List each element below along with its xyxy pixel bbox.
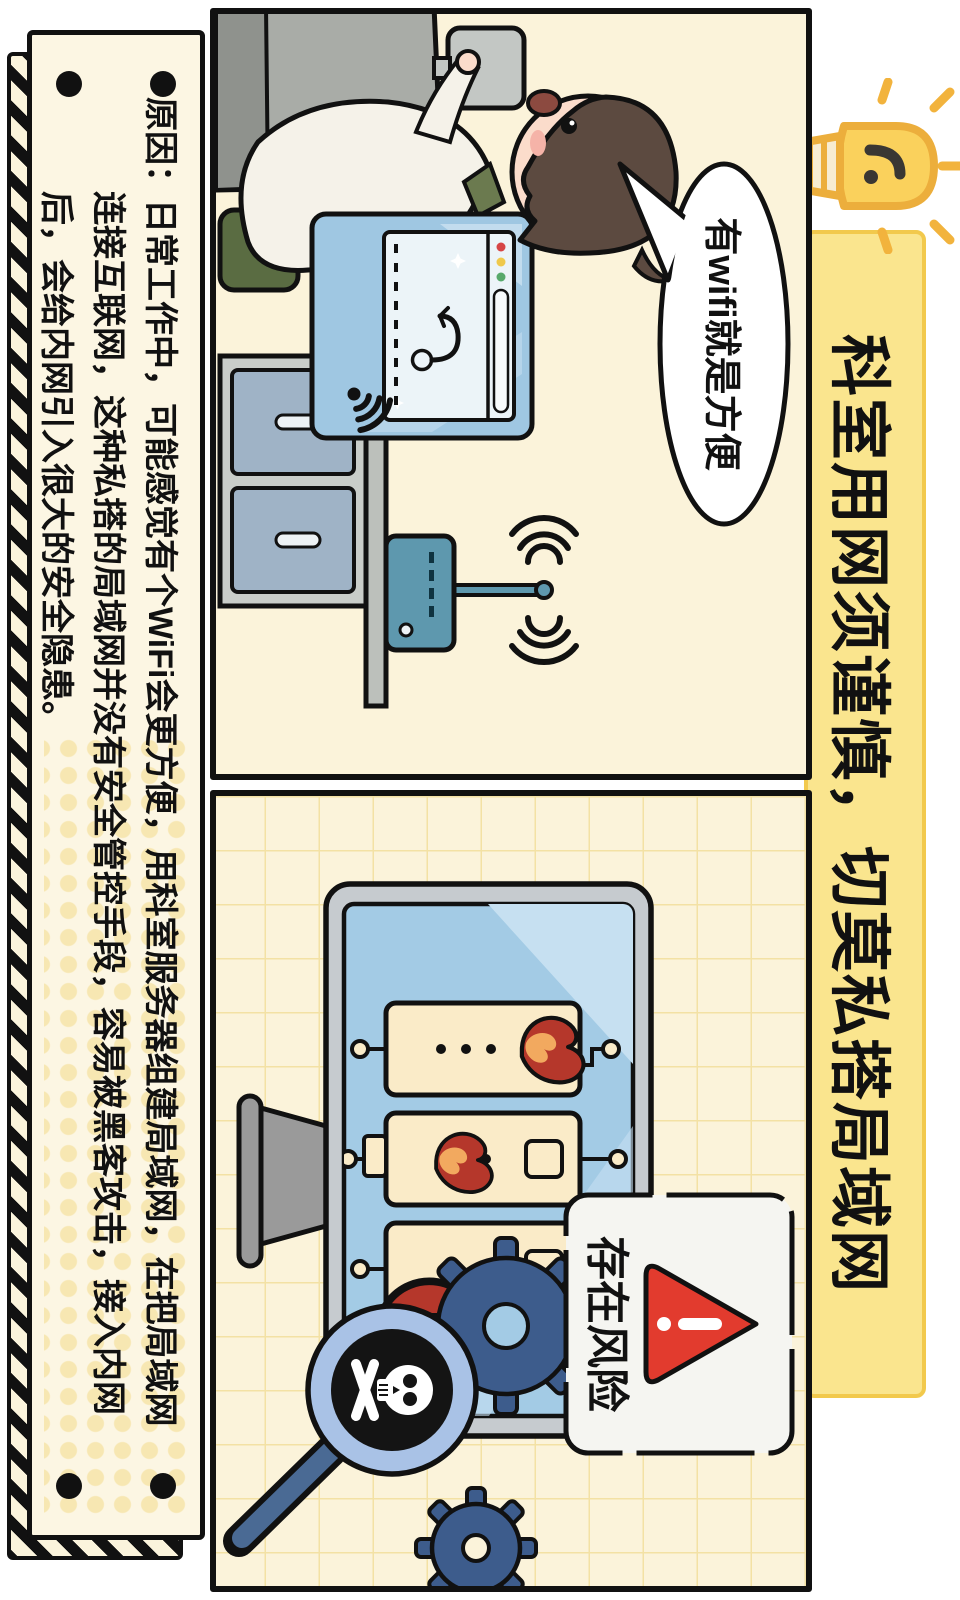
note-line: 原因：日常工作中，可能感觉有个WiFi会更方便，用科室服务器组建局域网，在把局域… <box>139 97 188 1426</box>
corner-dot <box>56 1473 82 1499</box>
warning-card: 存在风险 <box>566 1195 792 1453</box>
comic-panel-office: 有wifi就是方便 <box>210 8 812 780</box>
skull-icon <box>356 1364 433 1416</box>
flame-icon <box>522 1018 584 1083</box>
warning-label: 存在风险 <box>582 1236 631 1413</box>
corner-dot <box>150 71 176 97</box>
computer-screen <box>312 214 532 438</box>
note-line: 后，会给内网引入很大的安全隐患。 <box>35 191 84 735</box>
corner-dot <box>56 71 82 97</box>
screenshot-stage: 科室用网须谨慎，切莫私搭局域网 <box>0 0 960 1600</box>
comic-panel-risk: 存在风险 <box>210 790 812 1592</box>
corner-dot <box>150 1473 176 1499</box>
safety-comic-poster: 科室用网须谨慎，切莫私搭局域网 <box>0 0 960 1600</box>
note-line: 连接互联网，这种私搭的局域网并没有安全管控手段，容易被黑客攻击，接入内网 <box>87 191 136 1415</box>
speech-bubble-text: 有wifi就是方便 <box>700 217 742 471</box>
flame-icon <box>436 1134 492 1192</box>
title-band: 科室用网须谨慎，切莫私搭局域网 <box>804 230 926 1398</box>
page-title: 科室用网须谨慎，切莫私搭局域网 <box>820 334 910 1294</box>
browser-window <box>384 232 514 420</box>
note-box: 原因：日常工作中，可能感觉有个WiFi会更方便，用科室服务器组建局域网，在把局域… <box>27 30 205 1540</box>
